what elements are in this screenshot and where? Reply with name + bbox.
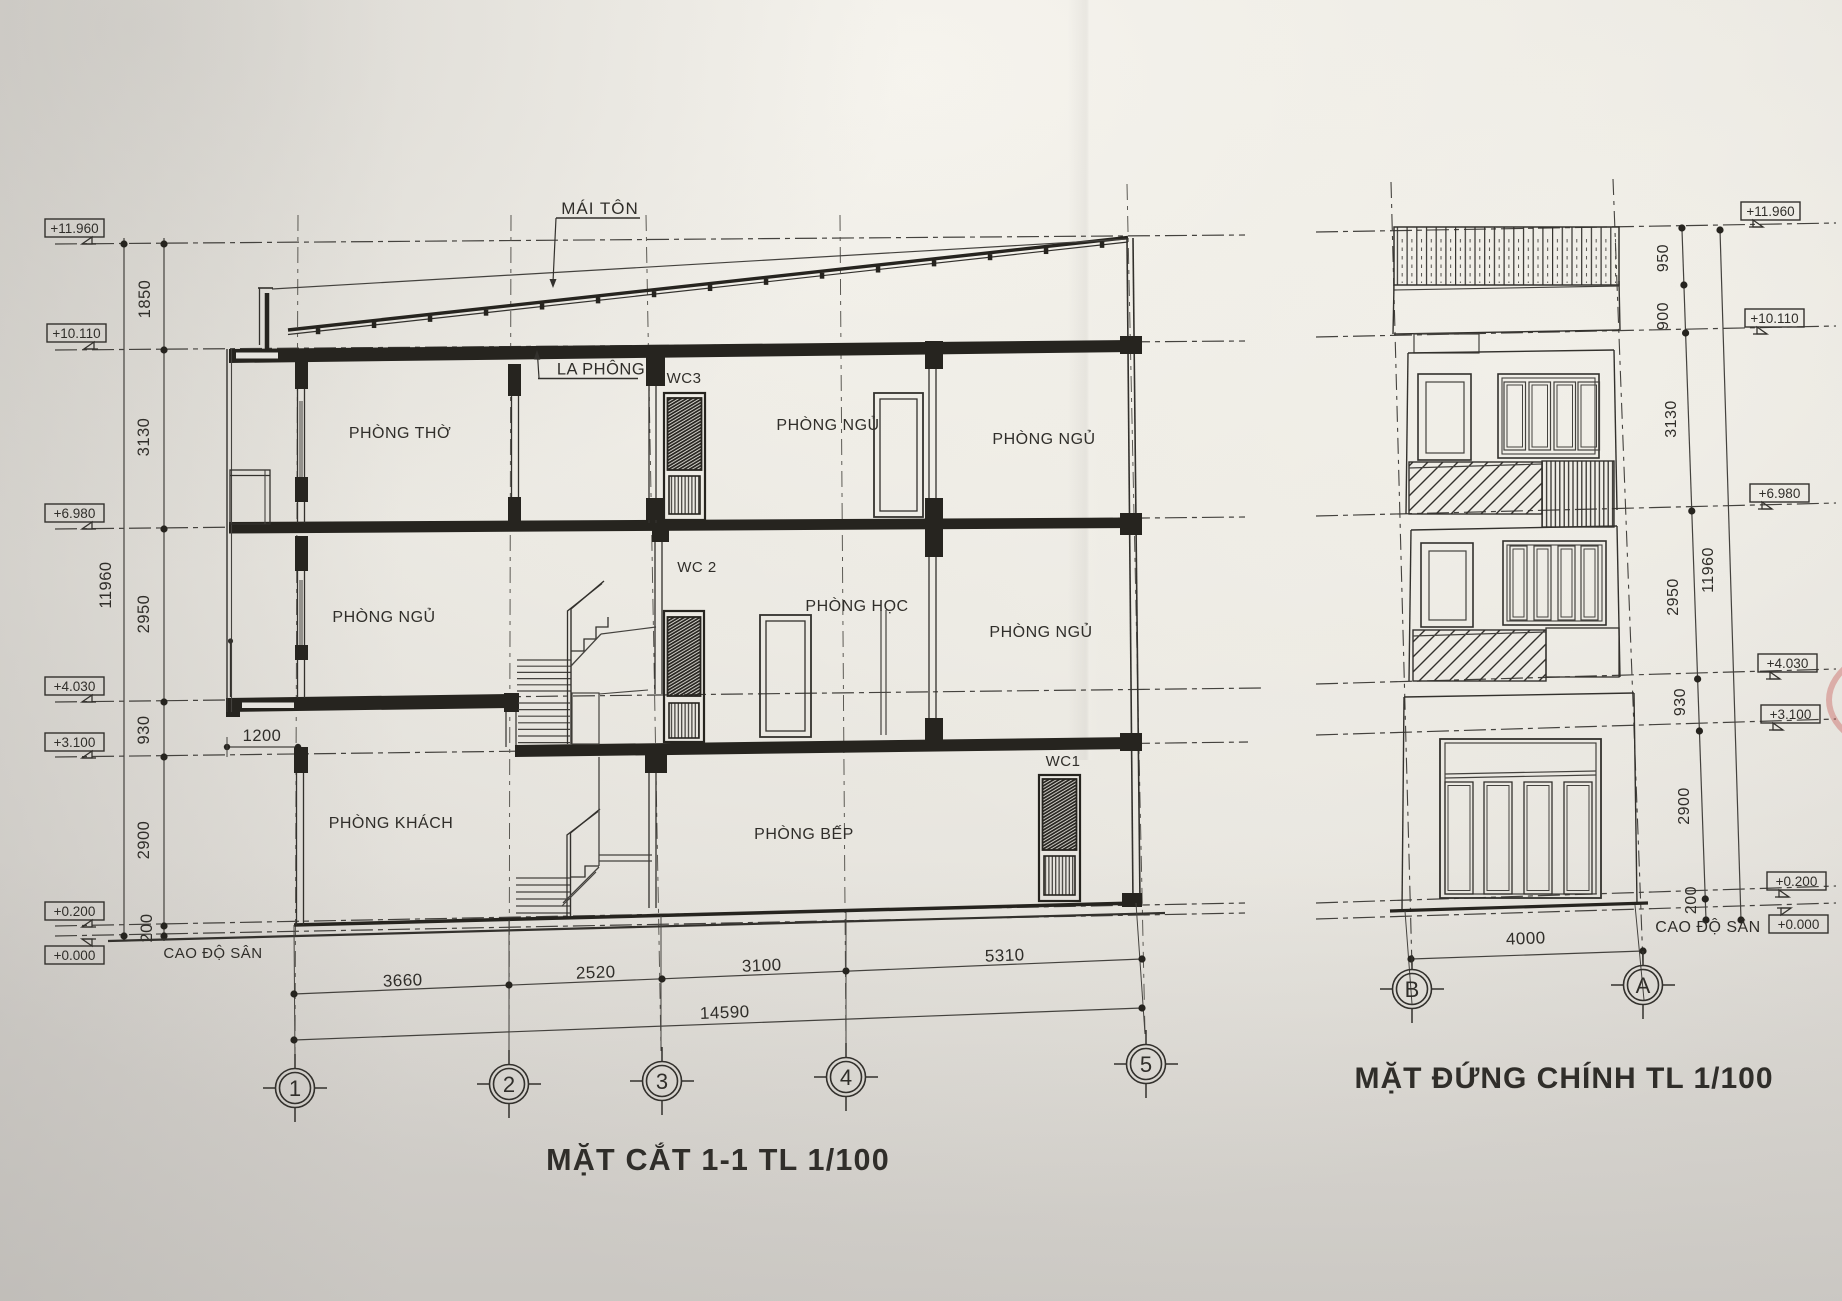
svg-text:200: 200 bbox=[138, 913, 156, 942]
svg-text:PHÒNG NGỦ: PHÒNG NGỦ bbox=[989, 622, 1092, 641]
svg-text:200: 200 bbox=[1683, 886, 1700, 914]
svg-text:930: 930 bbox=[135, 715, 153, 744]
svg-text:2900: 2900 bbox=[135, 821, 153, 860]
svg-text:14590: 14590 bbox=[700, 1002, 750, 1023]
svg-text:MÁI TÔN: MÁI TÔN bbox=[561, 199, 639, 218]
svg-text:3130: 3130 bbox=[1663, 400, 1680, 438]
svg-text:+0.200: +0.200 bbox=[54, 904, 96, 919]
svg-text:3130: 3130 bbox=[135, 418, 153, 457]
svg-text:PHÒNG NGỦ: PHÒNG NGỦ bbox=[776, 415, 879, 434]
svg-text:MẶT ĐỨNG CHÍNH TL 1/100: MẶT ĐỨNG CHÍNH TL 1/100 bbox=[1354, 1061, 1773, 1095]
svg-text:+0.000: +0.000 bbox=[1778, 917, 1820, 932]
svg-text:+4.030: +4.030 bbox=[1767, 656, 1809, 671]
svg-text:3660: 3660 bbox=[383, 970, 424, 991]
svg-text:1850: 1850 bbox=[136, 280, 154, 319]
svg-text:PHÒNG HỌC: PHÒNG HỌC bbox=[805, 596, 908, 615]
svg-text:2950: 2950 bbox=[135, 595, 153, 634]
svg-text:+3.100: +3.100 bbox=[54, 735, 96, 750]
svg-text:+6.980: +6.980 bbox=[54, 506, 96, 521]
svg-text:2950: 2950 bbox=[1665, 578, 1682, 616]
svg-text:PHÒNG NGỦ: PHÒNG NGỦ bbox=[992, 429, 1095, 448]
svg-text:+10.110: +10.110 bbox=[52, 326, 100, 341]
svg-text:PHÒNG KHÁCH: PHÒNG KHÁCH bbox=[329, 813, 454, 832]
svg-text:4000: 4000 bbox=[1506, 928, 1546, 948]
svg-text:5310: 5310 bbox=[985, 945, 1026, 966]
svg-text:CAO ĐỘ SÂN: CAO ĐỘ SÂN bbox=[163, 945, 262, 962]
svg-text:+3.100: +3.100 bbox=[1770, 707, 1812, 722]
svg-text:11960: 11960 bbox=[1700, 547, 1717, 593]
svg-text:PHÒNG THỜ: PHÒNG THỜ bbox=[349, 423, 451, 442]
svg-text:PHÒNG BẾP: PHÒNG BẾP bbox=[754, 824, 854, 843]
svg-text:11960: 11960 bbox=[97, 561, 115, 608]
svg-text:+4.030: +4.030 bbox=[54, 679, 96, 694]
svg-text:3100: 3100 bbox=[742, 955, 783, 976]
svg-text:950: 950 bbox=[1655, 244, 1672, 272]
svg-text:1: 1 bbox=[289, 1076, 301, 1101]
svg-text:900: 900 bbox=[1655, 302, 1672, 330]
svg-text:5: 5 bbox=[1140, 1052, 1152, 1077]
svg-text:B: B bbox=[1405, 977, 1420, 1002]
svg-text:PHÒNG NGỦ: PHÒNG NGỦ bbox=[332, 607, 435, 626]
svg-text:4: 4 bbox=[840, 1065, 852, 1090]
svg-text:LA PHÔNG: LA PHÔNG bbox=[557, 360, 645, 379]
svg-text:+10.110: +10.110 bbox=[1750, 311, 1798, 326]
svg-text:930: 930 bbox=[1672, 688, 1689, 716]
svg-text:1200: 1200 bbox=[243, 727, 282, 745]
svg-text:+0.000: +0.000 bbox=[54, 948, 96, 963]
svg-text:2: 2 bbox=[503, 1072, 515, 1097]
svg-text:WC3: WC3 bbox=[667, 370, 702, 387]
svg-text:+11.960: +11.960 bbox=[50, 221, 98, 236]
svg-text:CAO ĐỘ SÂN: CAO ĐỘ SÂN bbox=[1655, 917, 1760, 936]
svg-text:WC 2: WC 2 bbox=[677, 559, 717, 576]
svg-text:+11.960: +11.960 bbox=[1746, 204, 1794, 219]
svg-text:MẶT CẮT 1-1 TL 1/100: MẶT CẮT 1-1 TL 1/100 bbox=[546, 1141, 890, 1177]
svg-text:+0.200: +0.200 bbox=[1776, 874, 1818, 889]
svg-text:2520: 2520 bbox=[576, 962, 617, 983]
svg-text:WC1: WC1 bbox=[1046, 753, 1081, 770]
svg-text:3: 3 bbox=[656, 1069, 668, 1094]
svg-text:2900: 2900 bbox=[1676, 787, 1693, 825]
svg-text:+6.980: +6.980 bbox=[1759, 486, 1801, 501]
svg-text:A: A bbox=[1636, 973, 1651, 998]
